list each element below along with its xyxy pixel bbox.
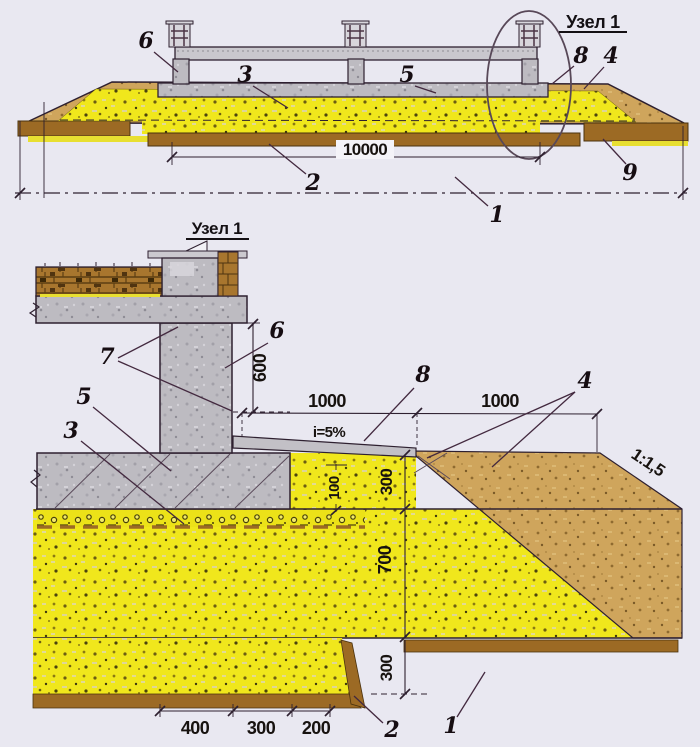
detail-callout-label: Узел 1 [566,12,620,32]
dim-300-upper: 300 [377,469,396,496]
callout-8: 8 [572,43,588,69]
gravel-bed [37,510,365,527]
dimension-400-300-200: 400 300 200 [155,704,335,738]
construction-diagram: 10000 6 3 5 8 4 9 2 1 Узел 1 [0,0,700,747]
dim-300-lower: 300 [377,655,396,682]
callout-2: 2 [304,170,320,196]
brick-piers [166,21,543,47]
dim-100: 100 [326,476,343,499]
dim-1000-left: 1000 [308,391,346,411]
dim-10000: 10000 [343,140,387,159]
detail-callout-8: 8 [414,362,430,388]
callout-9: 9 [622,160,637,186]
grillage-highlight [170,262,194,276]
detail-callout-7: 7 [99,344,115,370]
brick-facing [218,252,238,296]
detail-callout-6: 6 [269,318,284,344]
level-flag [186,241,207,251]
detail-callout-1: 1 [443,713,458,739]
foundation-column [160,323,232,453]
support-posts [173,59,538,84]
sand-sliver-left [28,136,156,142]
dim-400: 400 [181,718,210,738]
dim-apron-slope: i=5% [313,424,345,441]
wall-masonry [36,262,162,297]
dim-600: 600 [250,353,270,382]
overview-drawing: 10000 6 3 5 8 4 9 2 1 Узел 1 [15,11,688,228]
callout-6: 6 [138,28,153,54]
sand-cushion-deep [142,120,540,134]
detail-drawing: Узел 1 [30,219,682,743]
dim-1000-right: 1000 [481,391,519,411]
callout-3: 3 [237,62,252,88]
bottom-liner-strip [33,694,361,708]
callout-1: 1 [489,202,504,228]
right-liner-strip [404,640,678,652]
grillage-beam [175,47,537,60]
ground-slab [37,453,290,509]
dim-embankment-slope: 1:1,5 [628,445,668,481]
topsoil-strip-left [18,121,130,136]
detail-callout-5: 5 [76,384,91,410]
topsoil-strip-right [584,123,688,141]
detail-callout-3: 3 [63,418,78,444]
dim-700: 700 [375,545,395,574]
foundation-slab [158,83,548,97]
floor-slab [36,296,247,323]
dim-200: 200 [302,718,331,738]
detail-sand-bottom [33,638,353,694]
callout-4: 4 [603,43,618,69]
detail-callout-4: 4 [577,368,592,394]
callout-5: 5 [399,62,414,88]
sand-sliver-right [612,141,688,146]
detail-sand-upper [290,453,416,509]
dim-300-bottom: 300 [247,718,276,738]
detail-title: Узел 1 [192,219,243,238]
detail-callout-2: 2 [383,717,399,743]
